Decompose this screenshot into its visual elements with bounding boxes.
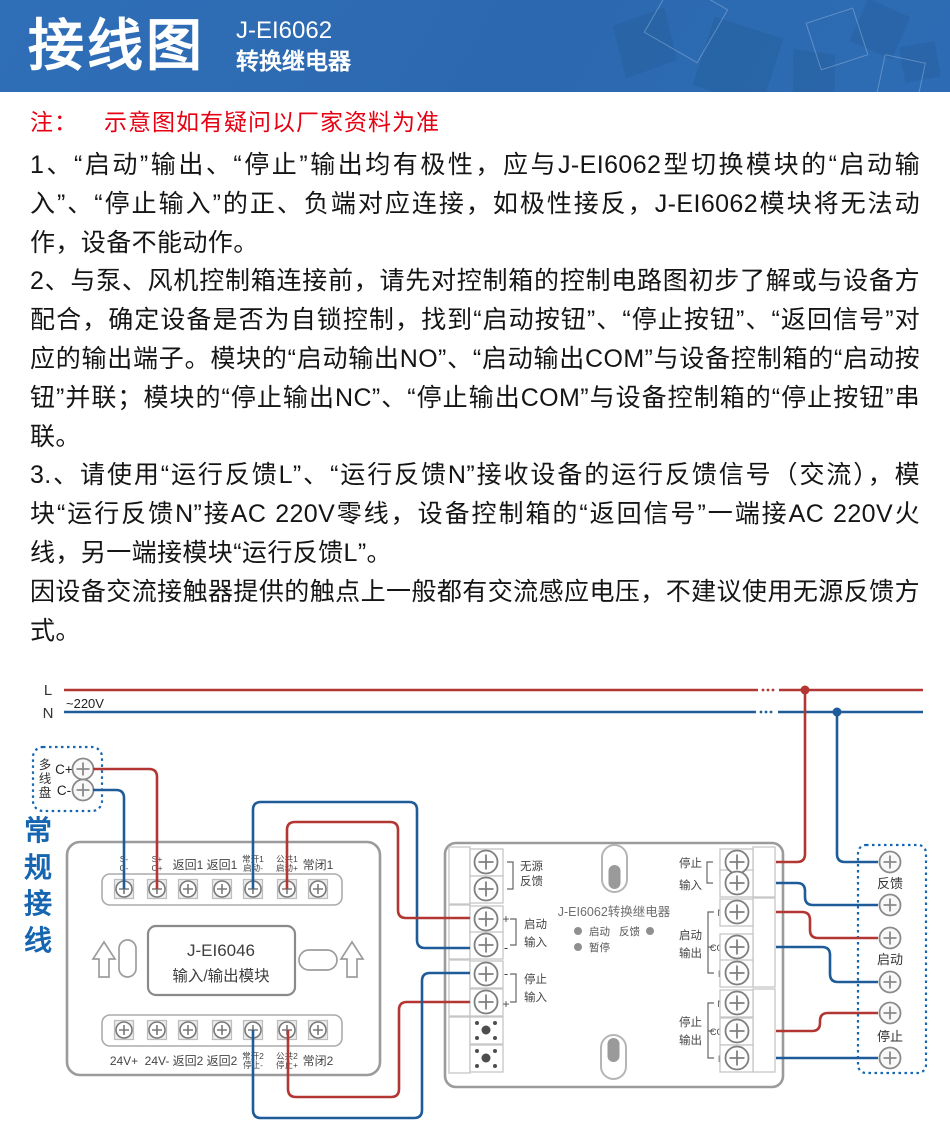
screw-terminal-icon [73,759,94,780]
terminal-label: 24V+ [110,1054,138,1068]
screw-terminal-icon [880,1003,901,1024]
terminal-label: 返回2 [173,1054,204,1068]
led-feedback-icon [646,927,654,935]
device-label: 反馈 [877,876,903,891]
panel-terminal-label: C+ [55,762,73,777]
terminal-label: 返回2 [207,1054,238,1068]
led-pause-icon [574,943,582,951]
group-label: 停止 [679,856,702,870]
section-char: 规 [24,852,52,883]
device-label: 启动 [877,952,903,967]
screw-terminal-icon [726,872,749,895]
screw-terminal-icon [475,963,498,986]
voltage-label: ~220V [66,696,104,711]
polarity-sign: + [502,912,509,926]
screw-terminal-icon [880,928,901,949]
module-name: J-EI6062转换继电器 [558,904,671,919]
polarity-sign: - [504,966,508,981]
polarity-sign: - [504,940,508,955]
screw-terminal-icon [880,1048,901,1069]
screw-terminal-icon [726,962,749,985]
screw-terminal-icon [880,895,901,916]
group-label: 输入 [524,990,547,1004]
led-label: 暂停 [589,941,610,954]
led-slot [119,940,136,977]
terminal-label: 返回1 [207,858,238,872]
model-subtitle: 转换继电器 [236,46,351,77]
module-jei6062: 无源 反馈 + - 启动 输入 - + 停止 输入 J-EI6062转换继电器 … [445,843,783,1087]
screw-terminal-icon [726,1047,749,1070]
module-name: J-EI6046 [187,941,255,960]
group-label: 启动 [524,918,547,931]
live-line-label: L [44,682,52,699]
group-label: 输入 [524,935,547,949]
screw-terminal-icon [475,878,498,901]
group-label: 输出 [679,1033,702,1047]
screw-terminal-icon [73,780,94,801]
wiring-diagram: L N ~220V 多 线 盘 C+ C- 常 规 接 [0,668,950,1147]
page-title: 接线图 [28,8,205,84]
neutral-line-label: N [43,705,54,722]
group-label: 无源 [520,859,543,873]
terminal-label: 常闭1 [303,858,334,872]
datasheet-page: 接线图 J-EI6062 转换继电器 注：示意图如有疑问以厂家资料为准 1、“启… [0,0,950,1147]
screw-terminal-icon [726,851,749,874]
paragraph-3: 3.、请使用“运行反馈L”、“运行反馈N”接收设备的运行反馈信号（交流），模块“… [30,456,920,572]
note-text: 示意图如有疑问以厂家资料为准 [104,109,440,135]
group-label: 停止 [524,972,547,986]
device-label: 停止 [877,1029,903,1044]
group-label: 输出 [679,946,702,960]
paragraph-4: 因设备交流接触器提供的触点上一般都有交流感应电压，不建议使用无源反馈方式。 [30,573,920,651]
power-bus: L N ~220V [43,682,923,722]
screw-terminal-icon [475,851,498,874]
led-label: 启动 [589,925,610,938]
screw-terminal-icon [475,908,498,931]
paragraph-2: 2、与泵、风机控制箱连接前，请先对控制箱的控制电路图初步了解或与设备方配合，确定… [30,262,920,456]
model-number: J-EI6062 [236,15,351,46]
polarity-sign: + [502,997,509,1011]
mounting-keyhole-slot [608,1038,620,1062]
group-label: 停止 [679,1015,702,1029]
module-subname: 输入/输出模块 [172,967,269,985]
screw-terminal-icon [880,972,901,993]
panel-terminal-label: C- [57,783,71,798]
caution-note: 注：示意图如有疑问以厂家资料为准 [30,103,440,137]
screw-terminal-icon [475,934,498,957]
mounting-keyhole-slot [609,865,621,889]
screw-terminal-icon [880,852,901,873]
screw-terminal-icon [475,991,498,1014]
terminal-label: 24V- [145,1054,170,1068]
header-banner: 接线图 J-EI6062 转换继电器 [0,0,950,92]
screw-terminal-icon [148,1021,167,1040]
wire-live-to-module [776,690,805,862]
led-label: 反馈 [619,925,640,938]
group-label: 反馈 [520,875,543,888]
led-slot [299,950,337,970]
model-block: J-EI6062 转换继电器 [236,15,351,77]
screw-terminal-icon [213,1021,232,1040]
section-char: 线 [24,925,52,956]
screw-terminal-icon [179,1021,198,1040]
panel-name-char: 盘 [39,785,52,800]
multiwire-panel: 多 线 盘 C+ C- [33,747,102,811]
screw-terminal-icon [179,880,198,899]
led-start-icon [574,927,582,935]
section-char: 接 [24,888,52,919]
note-prefix: 注： [30,109,78,135]
screw-terminal-icon [115,1021,134,1040]
screw-terminal-icon [726,1020,749,1043]
instructions: 1、“启动”输出、“停止”输出均有极性，应与J-EI6062型切换模块的“启动输… [0,146,950,650]
screw-terminal-icon [213,880,232,899]
screw-terminal-icon [309,1021,328,1040]
section-char: 常 [24,815,52,846]
group-label: 输入 [679,878,702,892]
wire-neutral-to-device [837,712,878,862]
terminal-label: 返回1 [173,858,204,872]
panel-name-char: 线 [39,772,52,786]
device-terminal-box: 反馈 启动 停止 [858,845,926,1073]
screw-terminal-icon [726,936,749,959]
screw-terminal-icon [726,992,749,1015]
group-label: 启动 [679,929,702,942]
paragraph-1: 1、“启动”输出、“停止”输出均有极性，应与J-EI6062型切换模块的“启动输… [30,146,920,262]
section-label: 常 规 接 线 [24,815,52,956]
panel-name-char: 多 [39,758,52,772]
module-jei6046: S- C- S+ C+ 返回1 返回1 常开1 启动- 公共1 启动+ 常闭1 [67,842,380,1075]
screw-terminal-icon [309,880,328,899]
screw-terminal-icon [726,901,749,924]
terminal-label: 常闭2 [303,1054,334,1068]
